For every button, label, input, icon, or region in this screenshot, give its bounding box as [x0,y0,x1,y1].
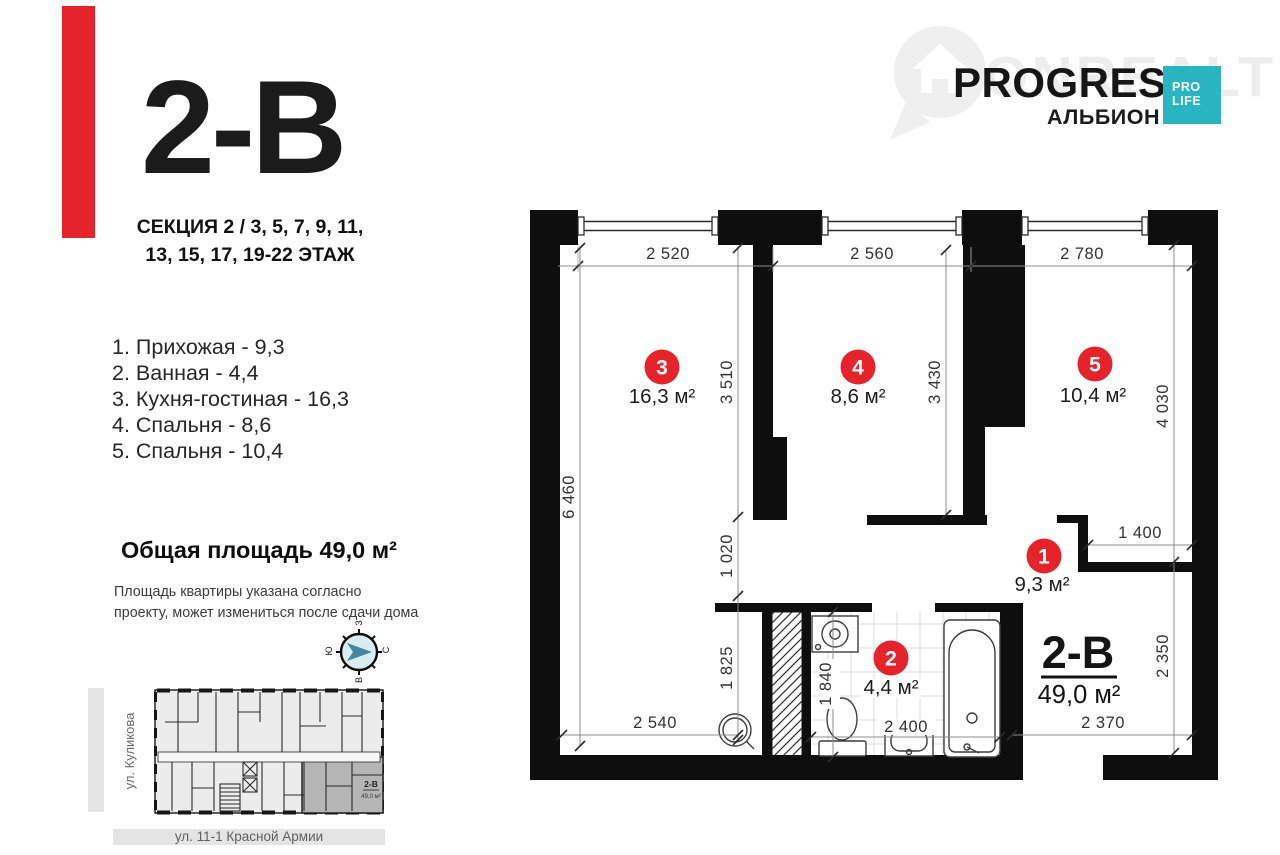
compass-bottom: В [354,677,364,683]
compass-right: С [381,646,391,653]
dim-inner-3: 1 825 [718,646,736,690]
room-list: 1. Прихожая - 9,3 2. Ванная - 4,4 3. Кух… [112,334,349,464]
badge-line1: PRO [1172,81,1221,95]
mini-unit-area: 49,0 м² [361,794,380,800]
dim-inner-2: 1 020 [718,534,736,578]
compass-left: Ю [324,646,334,655]
dim-room5: 4 030 [1154,384,1172,428]
section-line1: СЕКЦИЯ 2 / 3, 5, 7, 9, 11, [118,213,382,241]
brand-badge: PRO LIFE [1163,66,1221,124]
dim-top-2: 2 560 [850,245,894,263]
street-left-label: ул. Куликова [122,712,137,789]
mini-unit-code: 2-В [364,779,378,789]
badge-line2: LIFE [1172,95,1221,109]
room-list-item: 1. Прихожая - 9,3 [112,334,349,360]
dim-bath-height: 1 840 [817,662,835,706]
dim-niche: 1 400 [1118,524,1162,542]
mini-building-plan: ул. Куликова 2-В 49,0 м² ул. 11-1 Красно… [88,688,385,845]
section-line2: 13, 15, 17, 19-22 ЭТАЖ [118,241,382,269]
dim-top-3: 2 780 [1060,245,1104,263]
room-area-5: 10,4 м² [1060,384,1127,407]
dim-bottom-left: 2 540 [633,714,677,732]
total-area: Общая площадь 49,0 м² [121,537,397,564]
section-info: СЕКЦИЯ 2 / 3, 5, 7, 9, 11, 13, 15, 17, 1… [118,213,382,270]
room-area-3: 16,3 м² [629,385,696,408]
dim-inner-1: 3 510 [718,360,736,404]
room-area-2: 4,4 м² [863,676,918,699]
dim-right-lower: 2 350 [1154,634,1172,678]
room-list-item: 5. Спальня - 10,4 [112,438,349,464]
red-accent-bar [62,6,95,238]
dim-top-1: 2 520 [646,245,690,263]
dim-bottom-right: 2 370 [1081,714,1125,732]
brand-logo: PROGRESS [953,62,1160,104]
street-bottom-label: ул. 11-1 Красной Армии [175,829,323,844]
room-list-item: 3. Кухня-гостиная - 16,3 [112,386,349,412]
plan-unit-label: 2-В 49,0 м² [1038,627,1121,709]
room-area-1: 9,3 м² [1014,573,1069,596]
room-num-3: 3 [656,357,668,380]
disclaimer-line1: Площадь квартиры указана согласно [114,582,418,603]
room-area-4: 8,6 м² [830,385,885,408]
plan-unit-code: 2-В [1042,627,1115,678]
dim-bath-width: 2 400 [884,718,928,736]
room-list-item: 2. Ванная - 4,4 [112,360,349,386]
room-num-4: 4 [852,357,864,380]
brand-sublogo: АЛЬБИОН [953,105,1160,130]
dim-left: 6 460 [560,475,578,519]
windows [578,217,1148,235]
bathtub [944,620,1000,757]
street-bar-left [88,688,104,812]
room-num-5: 5 [1089,354,1101,377]
room-num-1: 1 [1038,546,1050,569]
room-num-2: 2 [885,648,897,671]
plan-unit-area: 49,0 м² [1038,681,1121,709]
room-list-item: 4. Спальня - 8,6 [112,412,349,438]
compass: З С В Ю [324,620,391,683]
disclaimer: Площадь квартиры указана согласно проект… [114,582,418,623]
vent-shaft [772,612,802,758]
dim-room4: 3 430 [926,360,944,404]
disclaimer-line2: проекту, может измениться после сдачи до… [114,603,418,624]
floor-plan: 2 520 2 560 2 780 6 460 3 510 1 020 1 82… [530,210,1218,780]
kitchen-fixture [719,714,754,749]
unit-title: 2-B [141,62,343,195]
washing-machine [812,616,858,652]
